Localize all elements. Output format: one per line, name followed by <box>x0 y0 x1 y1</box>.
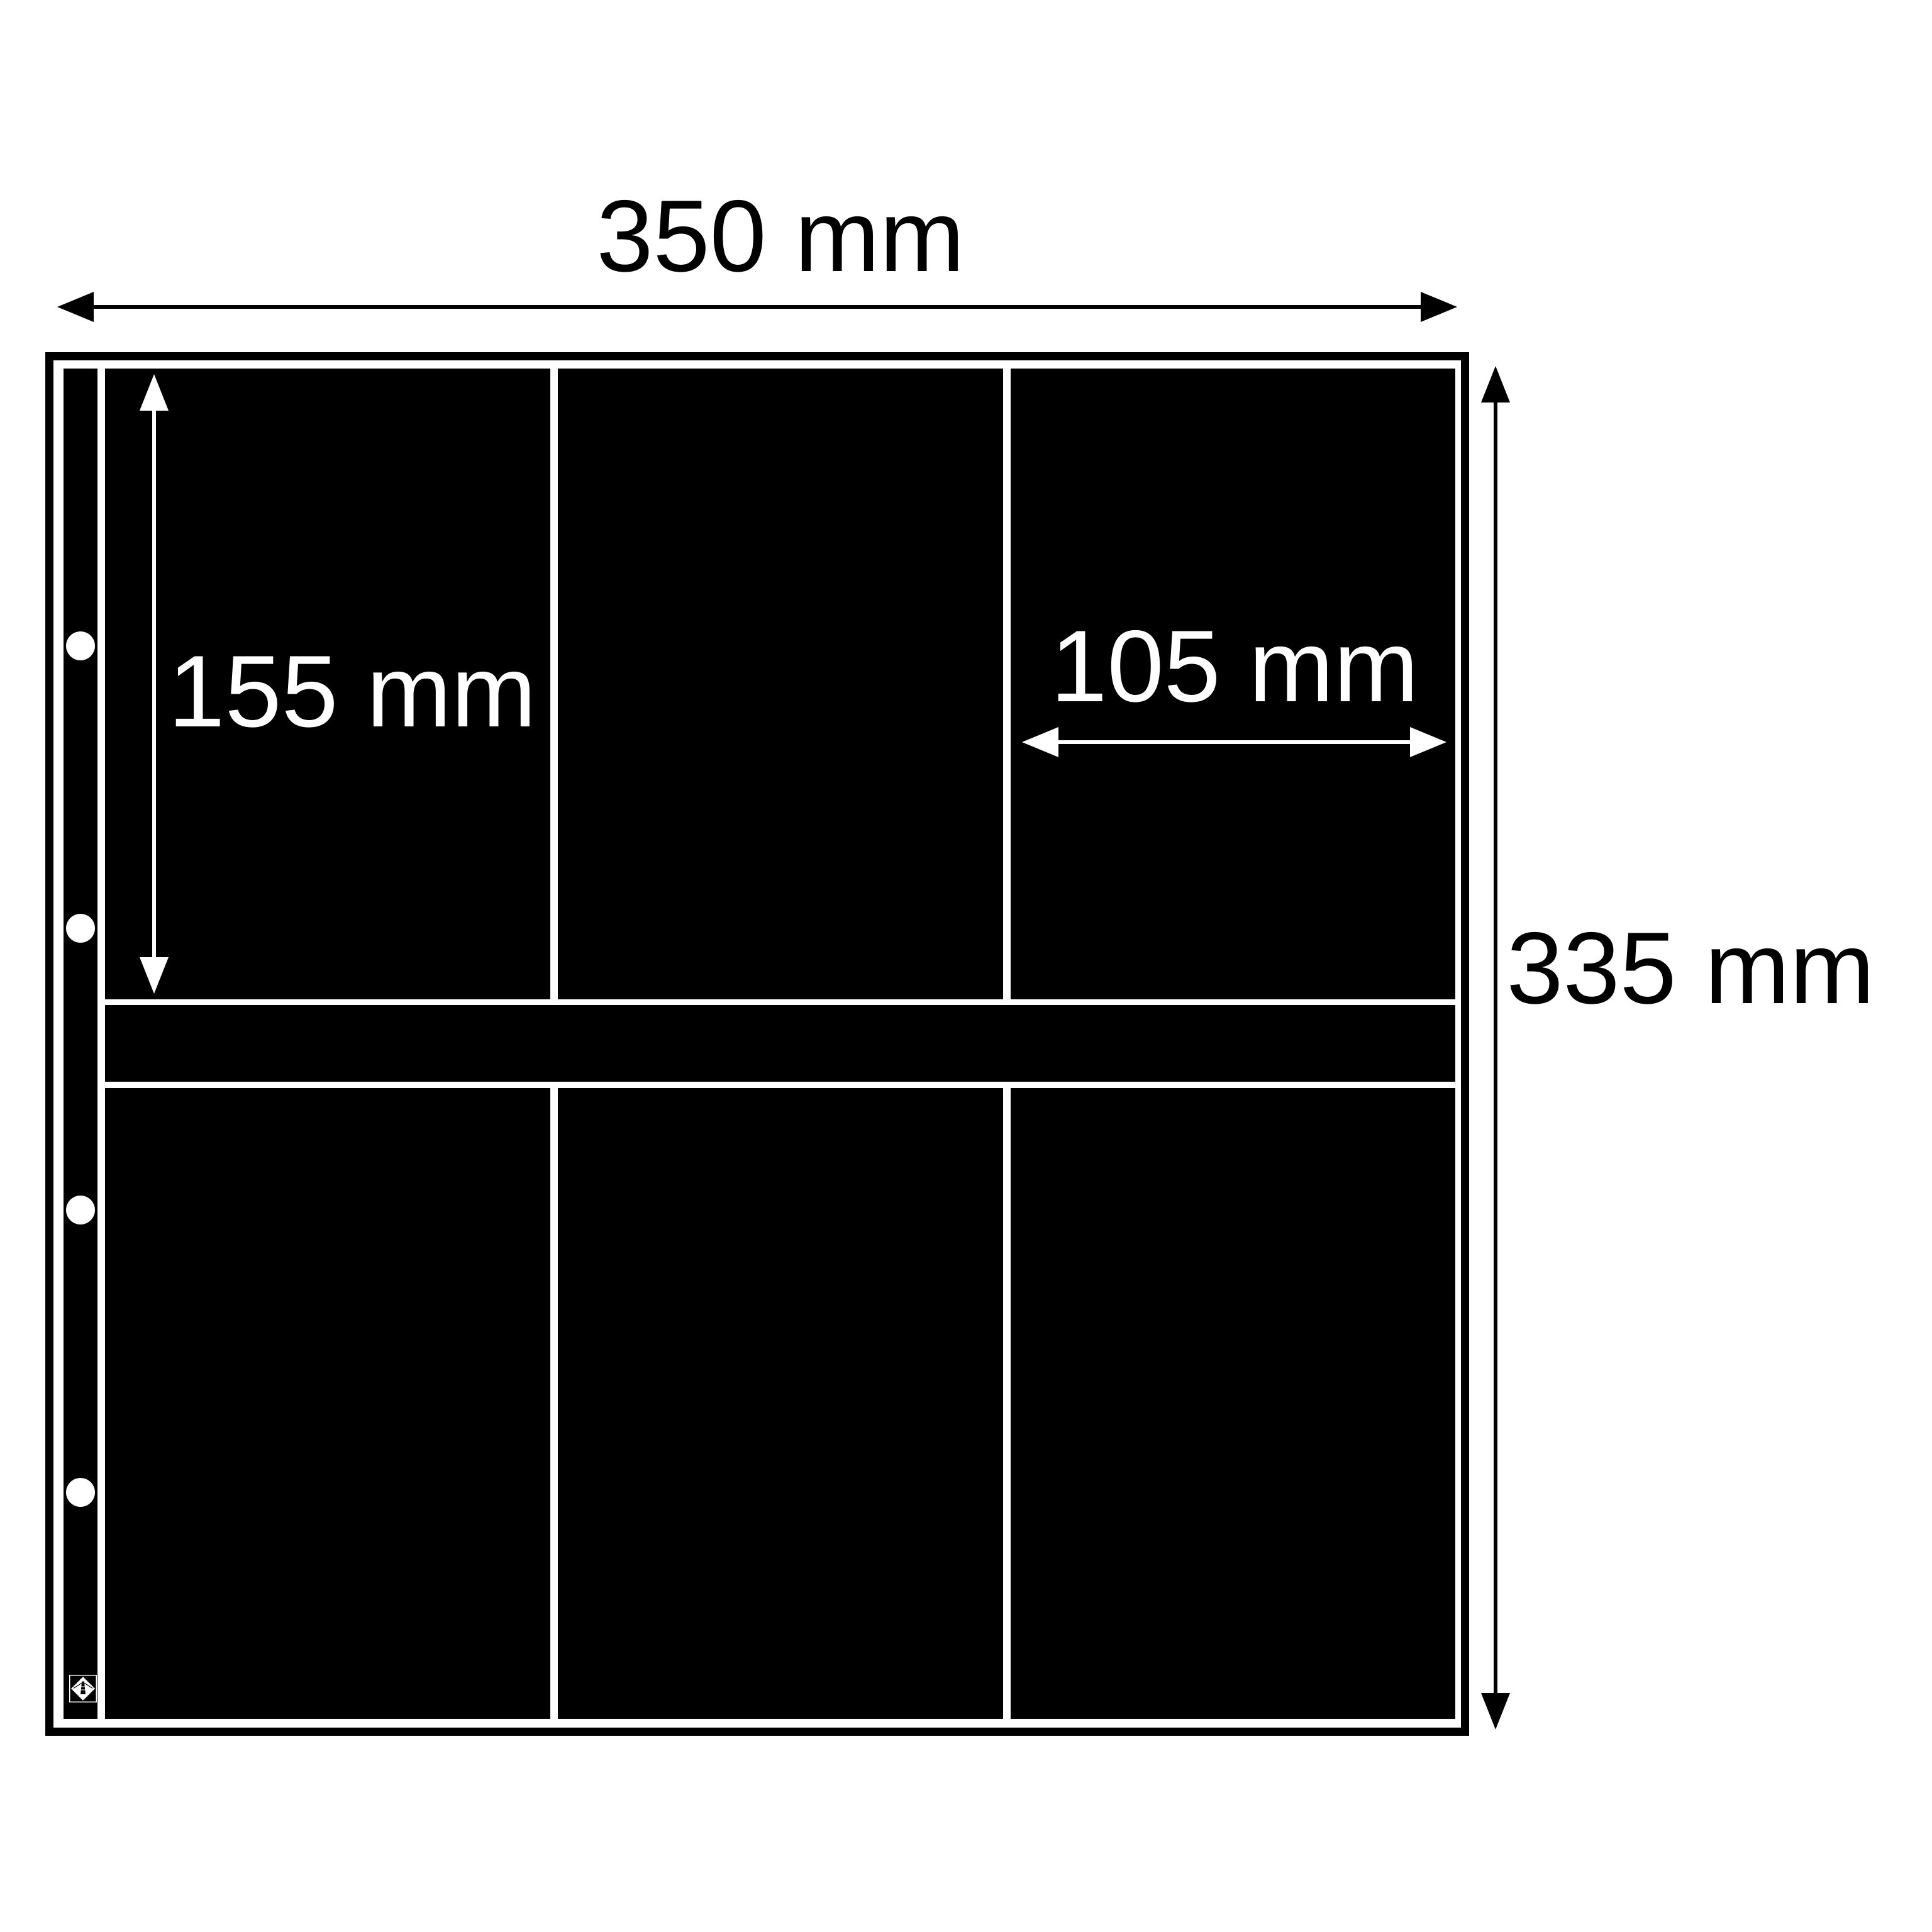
arrowhead-right-icon <box>1421 292 1457 322</box>
binding-strip <box>64 369 97 1719</box>
lighthouse-logo-icon <box>69 1675 97 1702</box>
pocket-width-label: 105 mm <box>1040 604 1430 730</box>
binder-hole-1 <box>66 631 95 660</box>
pocket-bottom-right <box>1011 1088 1455 1719</box>
arrowhead-down-icon <box>1481 1693 1510 1729</box>
arrowhead-down-icon <box>140 957 169 994</box>
binder-hole-2 <box>66 914 95 943</box>
arrowhead-up-icon <box>140 374 169 411</box>
pocket-bottom-left <box>105 1088 550 1719</box>
pocket-top-center <box>558 369 1003 999</box>
pocket-height-label: 155 mm <box>157 629 547 755</box>
arrowhead-up-icon <box>1481 366 1510 402</box>
binder-hole-4 <box>66 1478 95 1507</box>
sheet-width-label: 350 mm <box>586 174 975 299</box>
arrow-shaft <box>80 305 1434 309</box>
pocket-bottom-center <box>558 1088 1003 1719</box>
arrow-shaft <box>1045 740 1423 744</box>
arrowhead-left-icon <box>57 292 94 322</box>
sheet-height-label: 335 mm <box>1496 906 1885 1031</box>
arrowhead-right-icon <box>1410 727 1446 757</box>
middle-strip-bar <box>105 1005 1455 1082</box>
binder-hole-3 <box>66 1196 95 1224</box>
album-page-diagram: 350 mm 155 mm 105 mm 335 mm <box>0 0 1932 1932</box>
arrowhead-left-icon <box>1022 727 1058 757</box>
arrow-shaft <box>1494 390 1497 1695</box>
arrow-shaft <box>152 402 156 962</box>
